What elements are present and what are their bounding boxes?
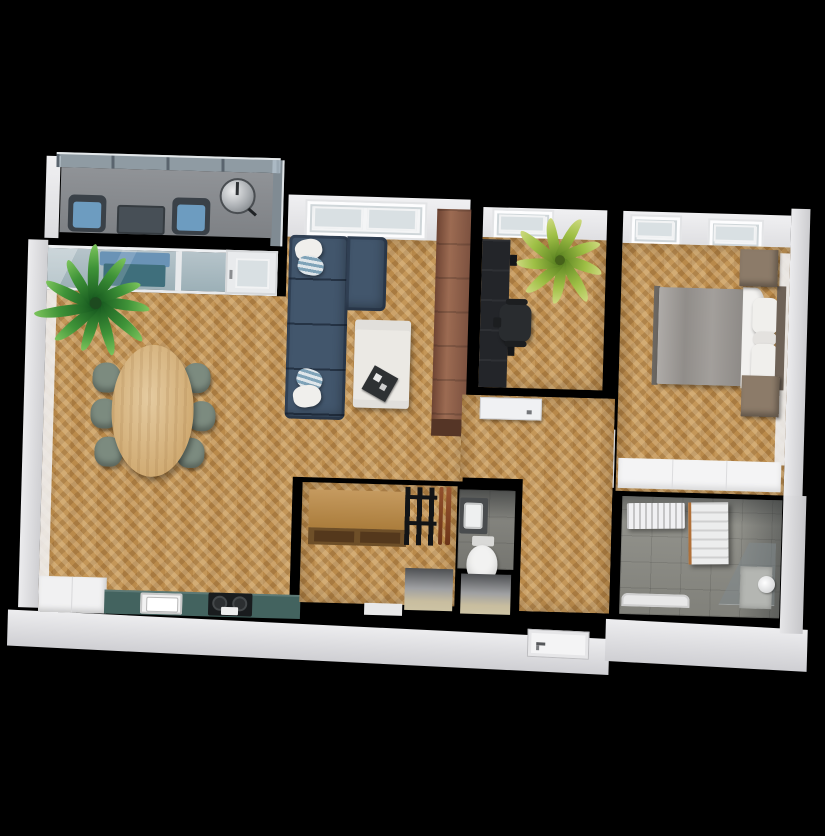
lounge-chair	[68, 194, 107, 232]
window-pane	[636, 220, 674, 238]
bedroom-wardrobe	[618, 458, 782, 493]
door-glass	[235, 258, 270, 289]
towel-shelf	[688, 502, 728, 564]
bed-pillow	[752, 298, 779, 335]
tray-item	[379, 383, 387, 391]
door-handle	[527, 410, 532, 414]
chair-cushion	[73, 202, 102, 229]
window-pane	[714, 224, 756, 242]
entry-niche	[460, 573, 511, 614]
kitchen-counter	[104, 590, 301, 619]
chair-armrest	[505, 341, 527, 348]
coat-rack	[404, 487, 438, 546]
wc-washbasin	[459, 497, 488, 534]
floorplan	[0, 0, 825, 836]
bathtub-edge	[621, 593, 689, 608]
rack-bar	[405, 495, 437, 500]
sideboard-top	[308, 489, 407, 530]
bed-duvet	[657, 287, 750, 386]
office-chair	[499, 303, 532, 342]
kitchen-hob	[208, 592, 253, 616]
nightstand	[741, 375, 780, 417]
cabinet-seam	[71, 577, 73, 613]
exterior-face-balcony-left	[44, 156, 60, 238]
entrance-door	[527, 629, 590, 660]
basin	[463, 503, 483, 530]
exterior-face-right-bathroom	[780, 495, 807, 634]
window-pane	[313, 206, 364, 229]
radiator	[627, 503, 685, 529]
office-open-door	[479, 397, 542, 421]
kitchen-sink	[140, 593, 183, 615]
rack-bar	[405, 521, 437, 526]
wardrobe-seam	[726, 461, 728, 491]
grill-handle	[236, 182, 239, 195]
storage-door-threshold	[364, 603, 402, 616]
exterior-face-bottom-right	[605, 619, 808, 672]
nightstand	[739, 249, 778, 287]
door-handle	[229, 270, 232, 279]
door-handle-rose	[536, 645, 539, 650]
tall-cabinet-base	[431, 419, 465, 437]
tall-cabinet	[431, 209, 471, 420]
living-window	[305, 199, 428, 240]
chair-back	[493, 317, 501, 327]
lounge-chair	[172, 197, 211, 235]
wardrobe-seam	[672, 459, 674, 489]
chair-cushion	[177, 204, 206, 231]
chair-armrest	[506, 299, 528, 306]
desk-shelf-box	[510, 255, 517, 266]
kitchen-cabinet	[38, 576, 107, 614]
sideboard-shelf	[314, 530, 354, 542]
exterior-face-bottom-left	[7, 610, 609, 675]
closet-niche	[404, 568, 453, 611]
corner-sofa-chaise	[345, 236, 387, 311]
balcony-side-table	[117, 205, 166, 235]
hob-dish	[221, 607, 238, 615]
sideboard-front	[308, 527, 406, 547]
tray-item	[373, 373, 383, 383]
kettle-grill	[219, 178, 256, 215]
sink-basin	[146, 597, 178, 613]
window-pane	[367, 208, 418, 231]
sideboard-shelf	[360, 532, 400, 544]
balcony-door	[225, 250, 278, 295]
